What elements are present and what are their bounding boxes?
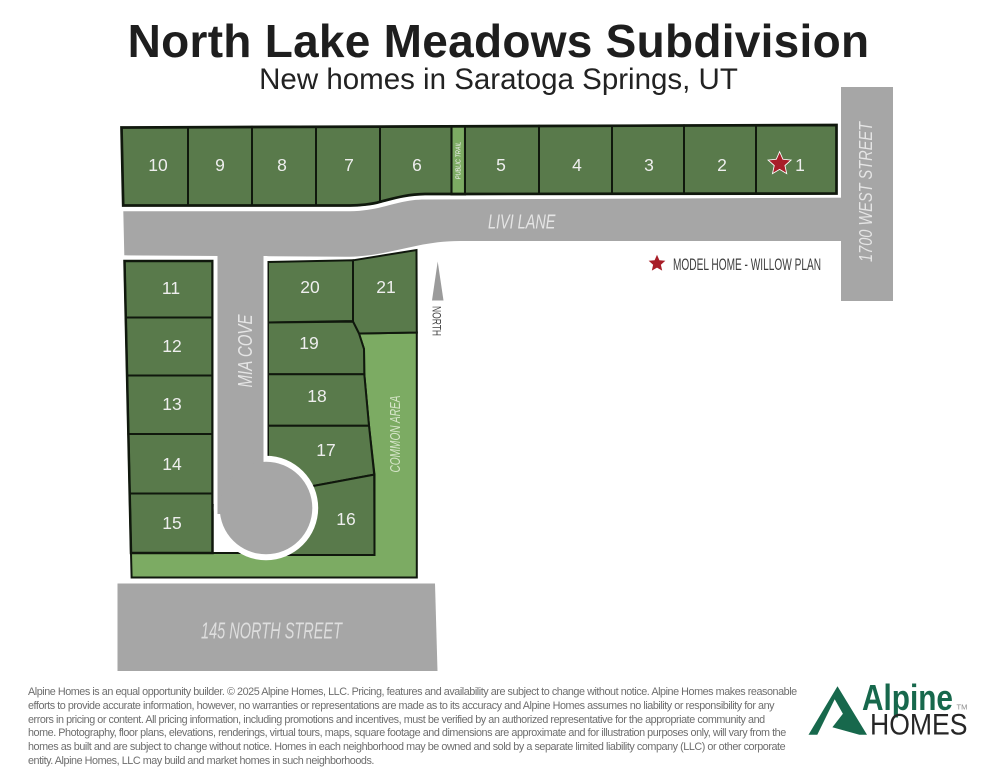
svg-text:1700 WEST STREET: 1700 WEST STREET xyxy=(855,121,876,262)
svg-text:145 NORTH STREET: 145 NORTH STREET xyxy=(201,618,343,644)
svg-text:16: 16 xyxy=(336,509,355,529)
svg-text:PUBLIC TRAIL: PUBLIC TRAIL xyxy=(454,142,463,180)
svg-text:5: 5 xyxy=(496,155,506,175)
svg-text:6: 6 xyxy=(412,155,422,175)
svg-text:1: 1 xyxy=(795,155,805,175)
svg-text:7: 7 xyxy=(344,155,354,175)
svg-text:MIA COVE: MIA COVE xyxy=(235,314,257,387)
svg-text:9: 9 xyxy=(215,155,225,175)
svg-text:MODEL HOME - WILLOW PLAN: MODEL HOME - WILLOW PLAN xyxy=(673,255,821,274)
svg-text:18: 18 xyxy=(307,386,326,406)
svg-text:10: 10 xyxy=(148,155,168,175)
svg-text:LIVI LANE: LIVI LANE xyxy=(488,212,556,234)
svg-text:3: 3 xyxy=(644,155,654,175)
svg-text:8: 8 xyxy=(277,155,287,175)
svg-text:17: 17 xyxy=(316,440,335,460)
svg-text:12: 12 xyxy=(162,336,181,356)
svg-text:4: 4 xyxy=(572,155,582,175)
svg-text:21: 21 xyxy=(376,277,395,297)
svg-text:15: 15 xyxy=(162,513,181,533)
svg-text:19: 19 xyxy=(299,333,318,353)
svg-text:13: 13 xyxy=(162,394,181,414)
svg-text:14: 14 xyxy=(162,454,182,474)
svg-text:2: 2 xyxy=(717,155,727,175)
svg-text:COMMON AREA: COMMON AREA xyxy=(388,396,404,473)
svg-text:11: 11 xyxy=(162,278,180,298)
svg-text:20: 20 xyxy=(300,277,320,297)
svg-text:NORTH: NORTH xyxy=(430,306,442,336)
